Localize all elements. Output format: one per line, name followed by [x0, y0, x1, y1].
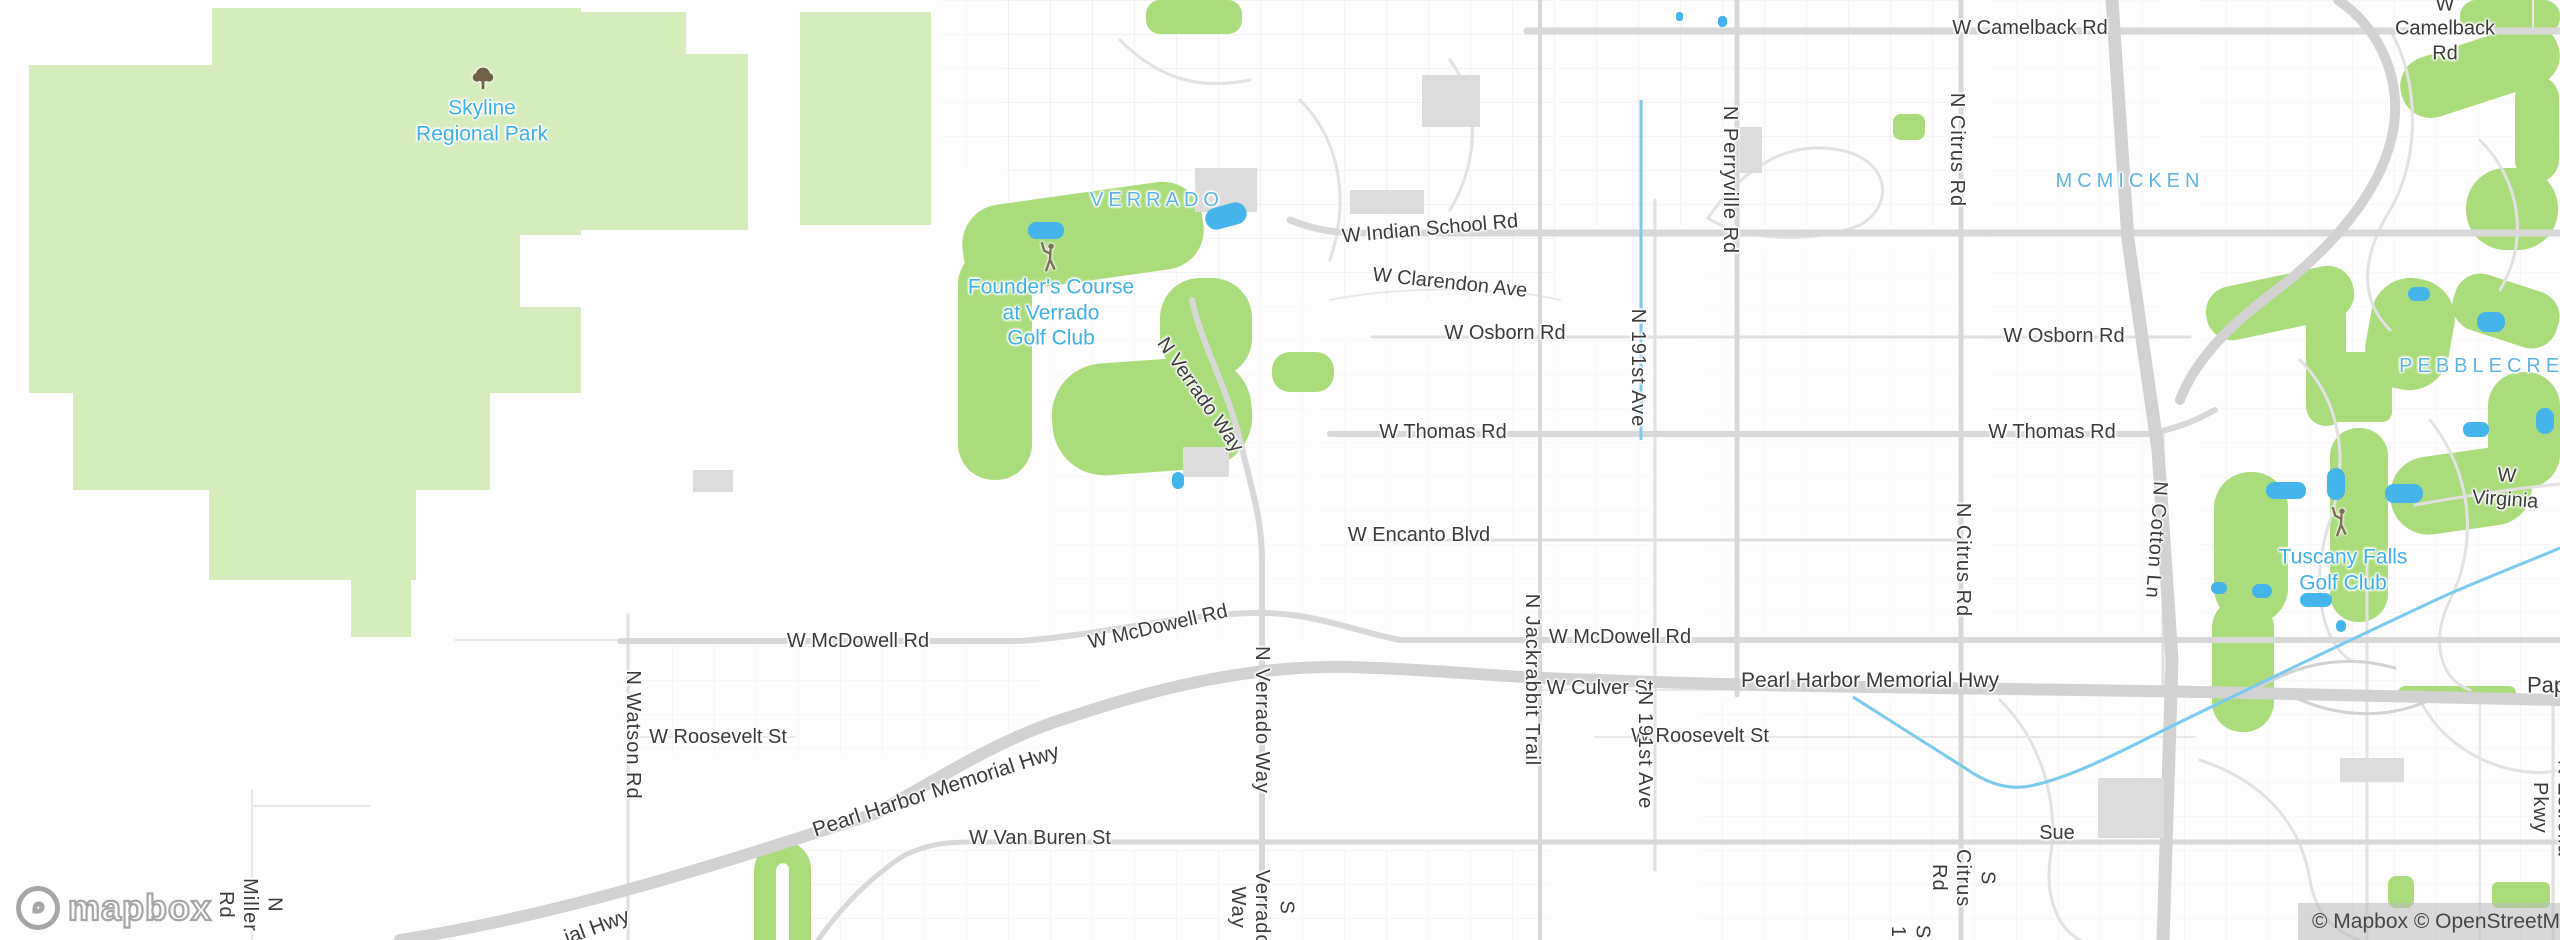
attribution-bar[interactable]: © Mapbox © OpenStreetMap: [2298, 903, 2560, 940]
park-areas: [29, 8, 931, 637]
mapbox-logo[interactable]: mapbox: [16, 886, 212, 930]
mapbox-logo-icon: [16, 886, 60, 930]
park-notch: [520, 235, 582, 307]
mapbox-wordmark: mapbox: [68, 887, 212, 929]
map-viewport[interactable]: Skyline Regional ParkVERRADOFounder's Co…: [0, 0, 2560, 940]
map-canvas[interactable]: [0, 0, 2560, 940]
attribution-text: © Mapbox © OpenStreetMap: [2312, 910, 2560, 934]
